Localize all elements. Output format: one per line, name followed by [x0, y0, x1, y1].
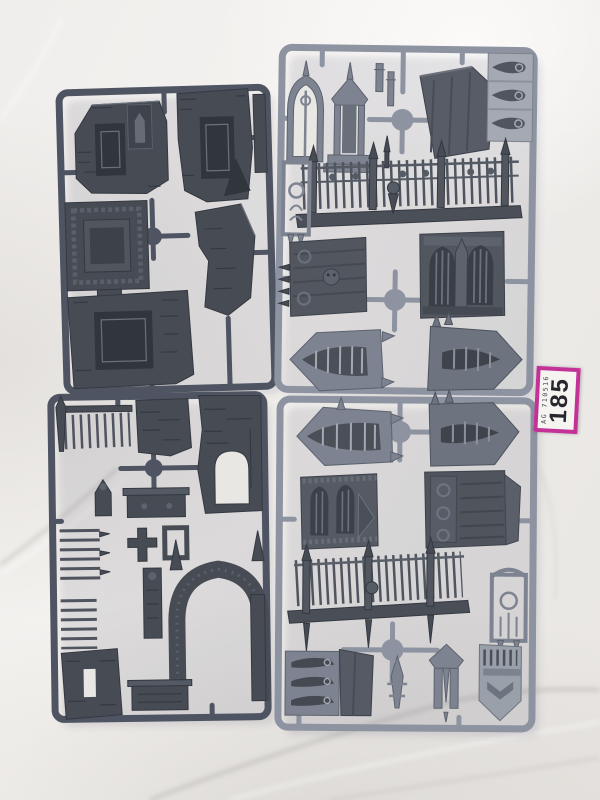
ruined-wall-panel-3	[67, 290, 194, 388]
label-number-text: 185	[548, 377, 573, 424]
armoured-door-slab	[279, 236, 368, 317]
sprue-top-right-gothic	[278, 47, 542, 401]
dentil-floor-panel	[65, 201, 150, 300]
brick-wall-slab	[61, 649, 122, 720]
inventory-label: AG 710516 185	[536, 367, 578, 433]
brick-rubble-square	[136, 399, 192, 457]
inventory-label-sticker: AG 710516 185	[533, 366, 580, 434]
sprue-bottom-left-fences-arches	[51, 393, 276, 727]
ruined-wall-panel-1	[74, 101, 169, 196]
medallion-door-slab	[424, 470, 521, 549]
statue-column-piece	[143, 568, 162, 638]
twin-lancet-dark-panel	[419, 230, 506, 319]
pedestal-piece	[123, 488, 189, 518]
sprues-illustration	[0, 0, 600, 800]
ruined-wall-arch-window	[197, 395, 263, 514]
lancet-trio-wall-panel	[487, 53, 533, 142]
photo-scene: AG 710516 185	[0, 0, 600, 800]
corner-lancet-roof-piece	[285, 649, 373, 716]
runner-hub	[381, 639, 403, 661]
altar-pedestal-piece	[128, 680, 192, 711]
sprue-top-left-ruin-panels	[59, 87, 282, 400]
sprue-bottom-right-gothic	[278, 389, 541, 737]
chevron-window-piece	[300, 473, 379, 550]
